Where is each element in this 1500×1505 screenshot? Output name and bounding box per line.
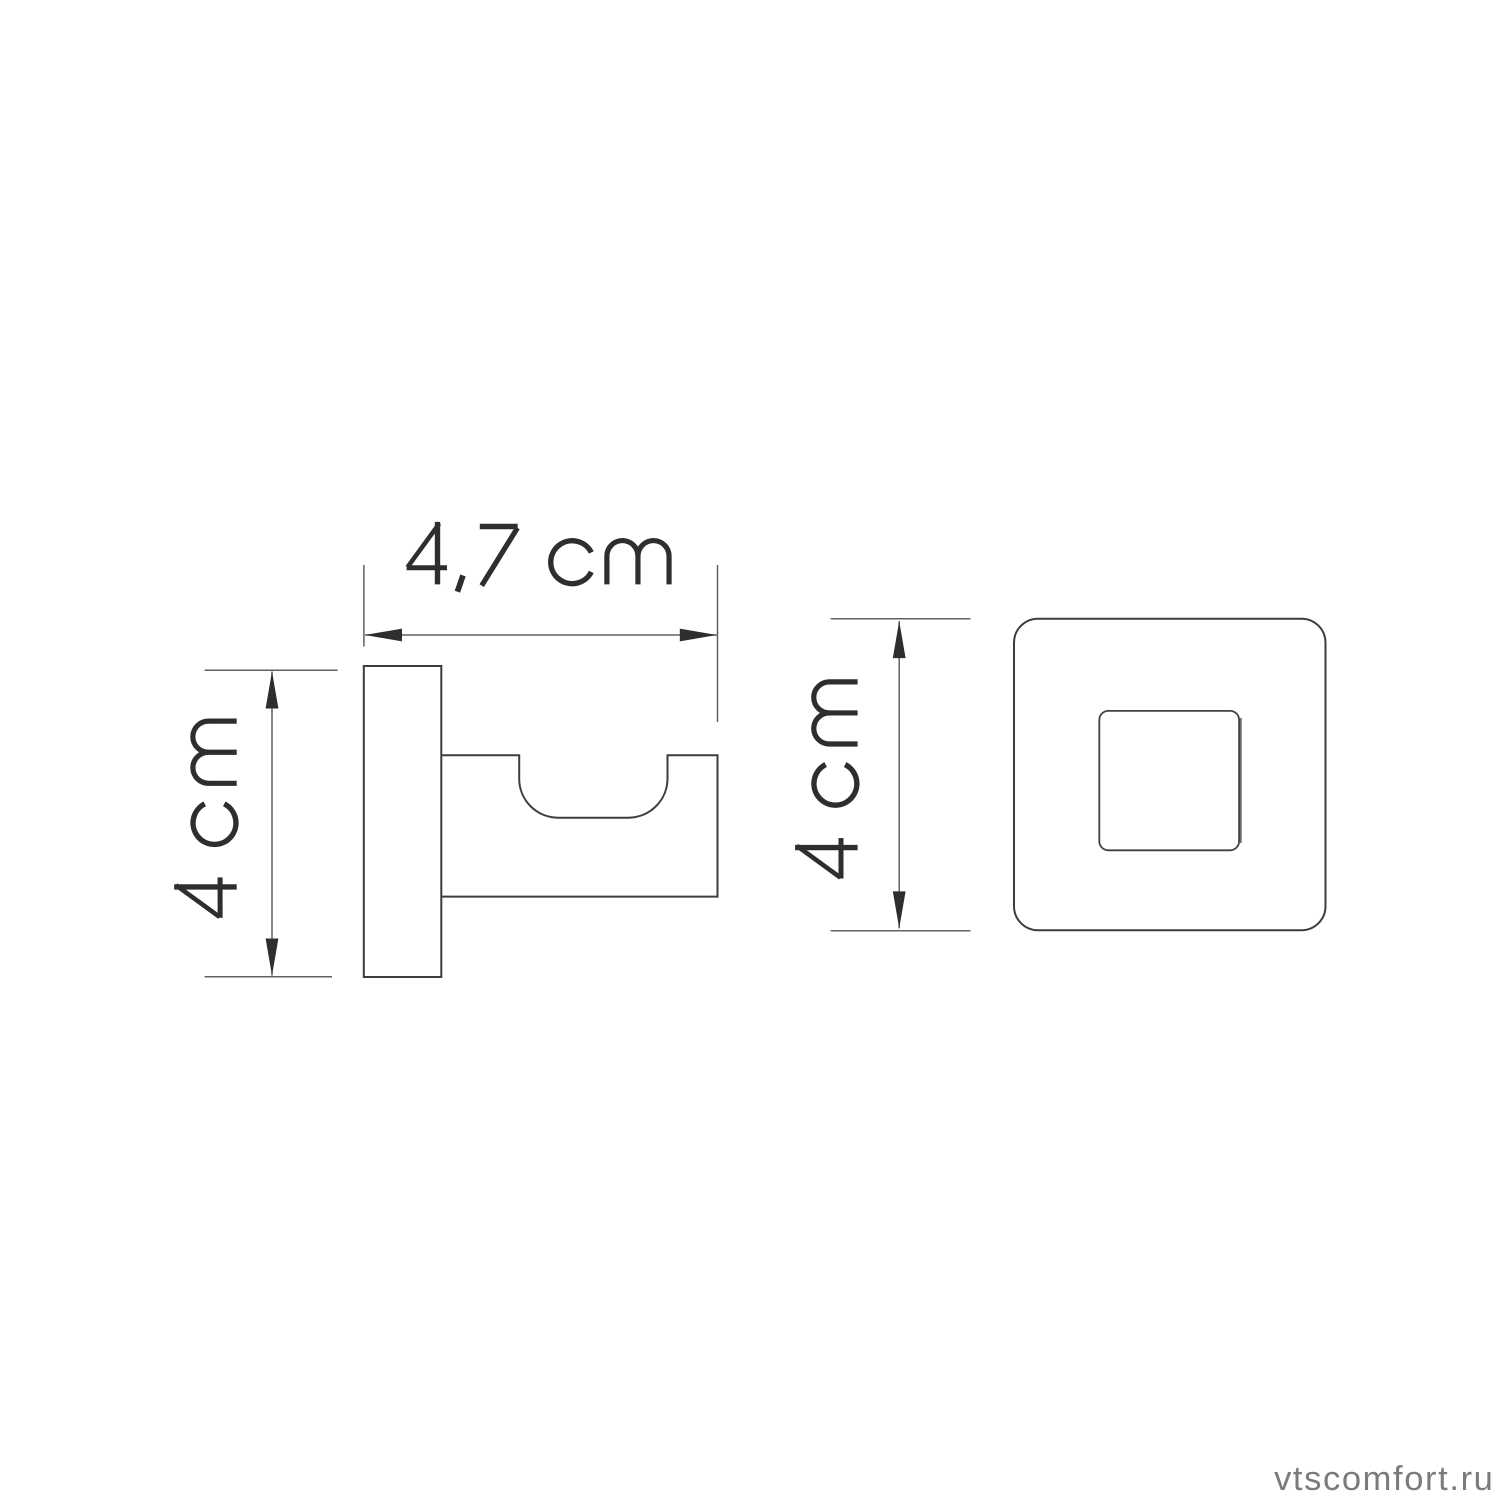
svg-text:vtscomfort.ru: vtscomfort.ru (1274, 1460, 1494, 1498)
